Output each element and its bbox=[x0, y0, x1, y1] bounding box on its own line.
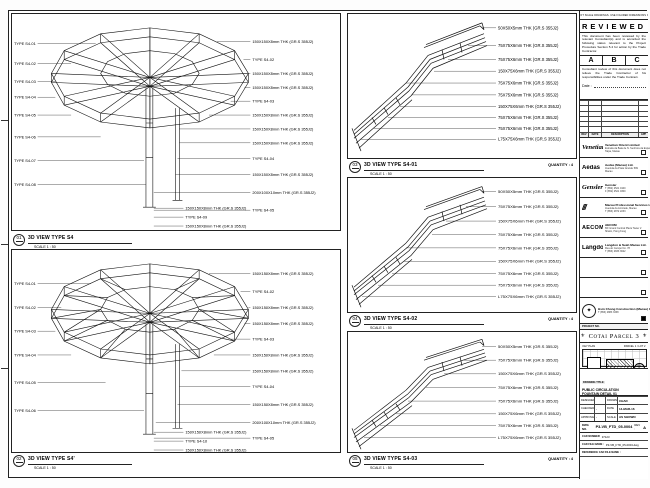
annotation-label: 150X75X6mm THK (GR.S 355J2) bbox=[498, 411, 561, 416]
view-scale: SCALE 1 : 50 bbox=[364, 326, 484, 330]
contractor-contact: T (853) 2883 3338 bbox=[598, 311, 646, 314]
annotation-label: TYPE S4-06 bbox=[14, 408, 37, 413]
annotation-label: 75X75X6mm THK (GR.S 355J2) bbox=[498, 43, 559, 48]
quantity-note: QUANTITY : 4 bbox=[548, 163, 573, 167]
view-title: 3D VIEW TYPE S4-02 bbox=[364, 315, 484, 325]
quantity-note: QUANTITY : 4 bbox=[548, 317, 573, 321]
date-line bbox=[594, 83, 646, 88]
annotation-label: TYPE S4-04 bbox=[252, 156, 275, 161]
contractor-row: ✦ Hsin Chong Construction (Macau) Co. Lt… bbox=[580, 298, 648, 324]
steel-members bbox=[352, 187, 487, 308]
annotation-label: 150X150X8mm THK (GR.S 355J2) bbox=[252, 368, 314, 373]
steel-members bbox=[352, 339, 487, 449]
detail-number: 04 bbox=[352, 317, 357, 322]
view-scale: SCALE 1 : 50 bbox=[364, 466, 484, 470]
annotation-label: 150X75X6mm THK (GR.S 355J2) bbox=[498, 104, 561, 109]
view-panel-04: 50X50X5mm THK (GR.S 355J2) 75X75X6mm THK… bbox=[347, 177, 577, 313]
consultant-row: Gensler Gensler T (852) 2521 0100 F (852… bbox=[580, 178, 648, 198]
annotation-label: TYPE S4-06 bbox=[14, 134, 37, 139]
annotation-label: 150X150X8mm THK (GR.S 355J2) bbox=[252, 172, 314, 177]
annotation-label: TYPE S4-03 bbox=[252, 337, 275, 342]
annotation-label: TYPE S4-05 bbox=[14, 113, 37, 118]
annotation-label: 75X75X6mm THK (GR.S 355J2) bbox=[498, 283, 559, 288]
detail-number: 01 bbox=[16, 236, 21, 241]
detail-number: 02 bbox=[16, 457, 21, 462]
status-checkbox bbox=[641, 170, 647, 176]
consultant-logo: AECOM bbox=[582, 225, 603, 231]
view-title-02: 02 3D VIEW TYPE S4'SCALE 1 : 50 bbox=[13, 455, 132, 470]
date-value: 14-MAR-16 bbox=[618, 404, 648, 412]
annotation-label: TYPE S4-08 bbox=[14, 182, 37, 187]
detail-ref-line bbox=[16, 462, 23, 465]
status-checkbox bbox=[641, 270, 647, 276]
date-label: Date : bbox=[582, 84, 592, 88]
view-scale: SCALE 1 : 50 bbox=[364, 172, 484, 176]
consultant-logo: Venetian bbox=[582, 144, 603, 151]
leader-lines bbox=[38, 42, 251, 226]
consultant-list: Venetian Venetian Orient Limited Estrada… bbox=[580, 138, 648, 298]
stamp-body: This document has been reviewed by the r… bbox=[580, 33, 648, 55]
right-annotations: 50X50X5mm THK (GR.S 355J2) 75X75X6mm THK… bbox=[498, 25, 561, 141]
cad-number-value: 37123 bbox=[602, 435, 610, 439]
fold-mark bbox=[1, 368, 8, 369]
annotation-label: 50X50X5mm THK (GR.S 355J2) bbox=[498, 189, 559, 194]
consultant-row: Venetian Venetian Orient Limited Estrada… bbox=[580, 138, 648, 158]
annotation-label: 150X150X8mm THK (GR.S 355J2) bbox=[252, 126, 314, 131]
annotation-label: 75X75X6mm THK (GR.S 355J2) bbox=[498, 115, 559, 120]
consultant-name: Macau Professional Services Ltd. bbox=[605, 203, 646, 207]
quantity-note: QUANTITY : 4 bbox=[548, 457, 573, 461]
view-title-01: 01 3D VIEW TYPE S4SCALE 1 : 50 bbox=[13, 234, 132, 249]
annotation-label: TYPE S4-04 bbox=[252, 384, 275, 389]
dwg-number-row: DWG NO. P3-VB_FTD_05-0004 REV : A bbox=[580, 422, 648, 433]
annotation-label: 75X75X6mm THK (GR.S 355J2) bbox=[498, 204, 559, 209]
fold-mark bbox=[1, 244, 8, 245]
annotation-label: 200X100X10mm THK (GR.S 355J2) bbox=[252, 420, 316, 425]
steel-members bbox=[352, 23, 487, 151]
ref-file-label: REFERENCE CAD FILE NAME : bbox=[582, 451, 621, 454]
annotation-label: TYPE S4-05 bbox=[14, 380, 37, 385]
annotation-label: TYPE S4-02 bbox=[252, 289, 274, 294]
annotation-label: 75X75X6mm THK (GR.S 355J2) bbox=[498, 271, 559, 276]
annotation-label: 150X150X8mm THK (GR.S 355J2) bbox=[252, 352, 314, 357]
date-label: DATE bbox=[606, 404, 618, 412]
annotation-label: 150X150X8mm THK (GR.S 355J2) bbox=[185, 447, 247, 452]
annotation-label: 75X75X6mm THK (GR.S 355J2) bbox=[498, 245, 559, 250]
status-checkbox bbox=[641, 150, 647, 156]
status-checkbox bbox=[641, 210, 647, 216]
annotation-label: 75X75X6mm THK (GR.S 355J2) bbox=[498, 232, 559, 237]
annotation-label: 150X75X6mm THK (GR.S 355J2) bbox=[498, 219, 562, 224]
left-annotations: TYPE S4-01 TYPE S4-02 TYPE S4-03 TYPE S4… bbox=[14, 281, 37, 413]
key-plan-map: ✛ bbox=[582, 349, 647, 367]
annotation-label: 150X150X8mm THK (GR.S 355J2) bbox=[252, 85, 314, 90]
view-title: 3D VIEW TYPE S4-03 bbox=[364, 455, 484, 465]
canopy-structure-drawing: TYPE S4-01 TYPE S4-02 TYPE S4-03 TYPE S4… bbox=[12, 250, 340, 452]
annotation-label: 150X150X8mm THK (GR.S 355J2) bbox=[252, 140, 314, 145]
annotation-label: TYPE S4-10 bbox=[185, 439, 208, 444]
annotation-label: TYPE S4-05 bbox=[252, 208, 275, 213]
detail-bubble: 02 bbox=[13, 455, 25, 467]
annotation-label: TYPE S4-03 bbox=[14, 79, 37, 84]
annotation-label: L75X75X6mm THK (GR.S 355J2) bbox=[498, 435, 561, 440]
steel-wireframe bbox=[51, 264, 248, 434]
detail-number: 03 bbox=[352, 163, 357, 168]
detail-ref-line bbox=[352, 168, 359, 171]
rev-label: REV : bbox=[634, 423, 641, 431]
annotation-label: 50X50X5mm THK (GR.S 355J2) bbox=[498, 25, 559, 30]
cad-file-label: CAD FILE NAME : bbox=[582, 443, 604, 446]
detail-ref-line bbox=[16, 241, 23, 244]
steel-wireframe bbox=[51, 28, 248, 207]
project-no-label: PROJECT NO. bbox=[582, 325, 600, 328]
fold-mark bbox=[1, 120, 8, 121]
title-block: DO NOT SCALE DRAWINGS. USE FIGURED DIMEN… bbox=[579, 11, 648, 479]
view-panel-03: 50X50X5mm THK (GR.S 355J2) 75X75X6mm THK… bbox=[347, 13, 577, 159]
view-title: 3D VIEW TYPE S4' bbox=[28, 455, 132, 465]
view-panel-05: 50X50X5mm THK (GR.S 355J2) 75X75X6mm THK… bbox=[347, 331, 577, 453]
rev-col-header: REV bbox=[580, 133, 589, 137]
approved-label: APPROVED bbox=[580, 413, 595, 421]
consultant-logo: LangdonSeah bbox=[582, 245, 603, 251]
cad-number-label: CAD NUMBER bbox=[582, 435, 600, 438]
drawing-sheet: TYPE S4-01 TYPE S4-02 TYPE S4-03 TYPE S4… bbox=[8, 10, 647, 478]
annotation-label: TYPE S4-03 bbox=[252, 99, 275, 104]
consultant-row: LangdonSeah Langdon & Seah Macau Ltd. Ru… bbox=[580, 238, 648, 258]
status-checkbox bbox=[641, 250, 647, 256]
project-name: Cotai Parcel 3 bbox=[589, 333, 640, 340]
annotation-label: 150X150X8mm THK (GR.S 355J2) bbox=[252, 305, 314, 310]
annotation-label: 75X75X6mm THK (GR.S 355J2) bbox=[498, 92, 559, 97]
revision-table: REV DATE DESCRIPTION APP bbox=[580, 100, 648, 138]
rib-assembly-drawing: 50X50X5mm THK (GR.S 355J2) 75X75X6mm THK… bbox=[348, 178, 576, 312]
annotation-label: 150X150X8mm THK (GR.S 355J2) bbox=[252, 39, 314, 44]
leader-lines bbox=[362, 191, 496, 296]
cad-file-value: P3-VB_FTD_05-0004.dwg bbox=[606, 443, 639, 447]
annotation-label: 150X75X6mm THK (GR.S 355J2) bbox=[498, 259, 562, 264]
right-annotations: 50X50X5mm THK (GR.S 355J2) 75X75X6mm THK… bbox=[498, 189, 562, 299]
annotation-label: TYPE S4-04 bbox=[14, 95, 37, 100]
annotation-label: 75X75X6mm THK (GR.S 355J2) bbox=[498, 385, 559, 390]
rev-value: A bbox=[643, 425, 646, 430]
consultant-row: /// Macau Professional Services Ltd. Ave… bbox=[580, 198, 648, 218]
annotation-label: 150X150X8mm THK (GR.S 355J2) bbox=[252, 321, 314, 326]
annotation-label: 75X75X6mm THK (GR.S 355J2) bbox=[498, 57, 559, 62]
detail-number: 05 bbox=[352, 457, 357, 462]
cad-file-row: CAD FILE NAME : P3-VB_FTD_05-0004.dwg bbox=[580, 441, 648, 449]
key-plan: KEY PLAN PARCEL 1 / LOT 2 ✛ bbox=[580, 343, 648, 369]
consultant-logo: Aedas bbox=[582, 165, 603, 171]
highlighted-area bbox=[606, 359, 634, 370]
detail-ref-line bbox=[352, 462, 359, 465]
leader-lines bbox=[38, 274, 251, 450]
annotation-label: 150X75X6mm THK (GR.S 355J2) bbox=[498, 371, 561, 376]
key-plan-ref: PARCEL 1 / LOT 2 bbox=[624, 345, 646, 348]
drawn-label: DRAWN bbox=[606, 396, 618, 404]
consultant-row: AECOM AECOM 8/F Grand Central Plaza Towe… bbox=[580, 218, 648, 238]
view-title-04: 04 3D VIEW TYPE S4-02SCALE 1 : 50 QUANTI… bbox=[349, 315, 575, 330]
designed-label: DESIGNED bbox=[580, 396, 595, 404]
annotation-label: TYPE S4-02 bbox=[14, 61, 36, 66]
detail-bubble: 01 bbox=[13, 234, 25, 246]
checked-value: - bbox=[595, 404, 606, 412]
annotation-label: 150X150X8mm THK (GR.S 355J2) bbox=[185, 224, 247, 229]
stamp-body2: Consultant review of this document does … bbox=[580, 66, 648, 81]
leader-lines bbox=[364, 347, 496, 438]
right-annotations: 150X150X8mm THK (GR.S 355J2) TYPE S4-02 … bbox=[252, 39, 316, 212]
rib-assembly-drawing: 50X50X5mm THK (GR.S 355J2) 75X75X6mm THK… bbox=[348, 332, 576, 452]
annotation-label: L75X75X6mm THK (GR.S 355J2) bbox=[498, 137, 561, 142]
checked-label: CHECKED bbox=[580, 404, 595, 412]
annotation-label: TYPE S4-02 bbox=[14, 305, 36, 310]
drawing-title-section: DRAWING TITLE: PUBLIC CIRCULATION FOUNTA… bbox=[580, 369, 648, 396]
building-footprint bbox=[587, 357, 601, 370]
annotation-label: 150X150X8mm THK (GR.S 355J2) bbox=[252, 71, 314, 76]
consultant-logo: Gensler bbox=[582, 184, 603, 191]
grade-a: A bbox=[580, 56, 603, 65]
designed-value bbox=[595, 396, 606, 404]
detail-ref-line bbox=[352, 322, 359, 325]
annotation-label: 150X150X8mm THK (GR.S 355J2) bbox=[185, 430, 247, 435]
annotation-label: 50X50X5mm THK (GR.S 355J2) bbox=[498, 344, 559, 349]
detail-bubble: 04 bbox=[349, 315, 361, 327]
view-panel-02: TYPE S4-01 TYPE S4-02 TYPE S4-03 TYPE S4… bbox=[11, 249, 341, 453]
view-scale: SCALE 1 : 50 bbox=[28, 466, 132, 470]
app-col-header: APP bbox=[639, 133, 648, 137]
annotation-label: TYPE S4-09 bbox=[185, 215, 207, 220]
stamp-grade-row: A B C bbox=[580, 55, 648, 66]
annotation-label: TYPE S4-07 bbox=[14, 158, 36, 163]
date-col-header: DATE bbox=[589, 133, 602, 137]
ornament-icon: ⚜ bbox=[581, 333, 586, 339]
annotation-label: 75X75X6mm THK (GR.S 355J2) bbox=[498, 423, 559, 428]
consultant-row: Aedas Aedas (Macau) Ltd. Avenida da Prai… bbox=[580, 158, 648, 178]
dwg-no-label: DWG NO. bbox=[582, 423, 594, 431]
rib-assembly-drawing: 50X50X5mm THK (GR.S 355J2) 75X75X6mm THK… bbox=[348, 14, 576, 158]
bottom-annotations: 150X150X8mm THK (GR.S 355J2) TYPE S4-10 … bbox=[185, 430, 247, 452]
detail-bubble: 03 bbox=[349, 161, 361, 173]
view-title: 3D VIEW TYPE S4 bbox=[28, 234, 132, 244]
bottom-spacer bbox=[580, 457, 648, 479]
stamp-date-row: Date : bbox=[580, 81, 648, 88]
description-col-header: DESCRIPTION bbox=[602, 133, 639, 137]
ref-file-row: REFERENCE CAD FILE NAME : bbox=[580, 449, 648, 457]
annotation-label: 150X75X6mm THK (GR.S 355J2) bbox=[498, 69, 561, 74]
scale-label: SCALE bbox=[606, 413, 618, 421]
cad-number-row: CAD NUMBER 37123 bbox=[580, 433, 648, 441]
disclaimer-note: DO NOT SCALE DRAWINGS. USE FIGURED DIMEN… bbox=[580, 11, 648, 20]
annotation-label: TYPE S4-01 bbox=[14, 41, 36, 46]
view-title: 3D VIEW TYPE S4-01 bbox=[364, 161, 484, 171]
annotation-label: L75X75X6mm THK (GR.S 355J2) bbox=[498, 294, 562, 299]
status-checkbox-filled bbox=[641, 316, 647, 322]
annotation-label: 75X75X6mm THK (GR.S 355J2) bbox=[498, 81, 559, 86]
key-plan-label: KEY PLAN bbox=[583, 345, 596, 348]
consultant-name: Venetian Orient Limited bbox=[605, 143, 646, 147]
annotation-label: TYPE S4-03 bbox=[14, 329, 37, 334]
right-annotations: 50X50X5mm THK (GR.S 355J2) 75X75X6mm THK… bbox=[498, 344, 561, 440]
contractor-emblem-icon: ✦ bbox=[582, 304, 596, 318]
stamp-title: REVIEWED bbox=[580, 20, 648, 33]
annotation-label: 75X75X6mm THK (GR.S 355J2) bbox=[498, 358, 559, 363]
annotation-label: 75X75X6mm THK (GR.S 355J2) bbox=[498, 126, 559, 131]
annotation-label: TYPE S4-02 bbox=[252, 57, 274, 62]
approved-value: - bbox=[595, 413, 606, 421]
consultant-row bbox=[580, 278, 648, 298]
consultant-row bbox=[580, 258, 648, 278]
annotation-label: 150X150X8mm THK (GR.S 355J2) bbox=[252, 113, 314, 118]
grade-c: C bbox=[626, 56, 648, 65]
revision-header-row: REV DATE DESCRIPTION APP bbox=[580, 132, 648, 137]
annotation-label: 150X150X8mm THK (GR.S 355J2) bbox=[185, 206, 247, 211]
consultant-logo: /// bbox=[582, 203, 603, 212]
annotation-label: TYPE S4-01 bbox=[14, 281, 36, 286]
consultant-name: Langdon & Seah Macau Ltd. bbox=[605, 243, 646, 247]
annotation-label: TYPE S4-04 bbox=[14, 352, 37, 357]
status-checkbox bbox=[641, 230, 647, 236]
annotation-label: 200X100X10mm THK (GR.S 355J2) bbox=[252, 190, 316, 195]
drawn-value: CHAD bbox=[618, 396, 648, 404]
bottom-annotations: 150X150X8mm THK (GR.S 355J2) TYPE S4-09 … bbox=[185, 206, 247, 229]
project-banner: ⚜ Cotai Parcel 3 ⚜ bbox=[580, 330, 648, 343]
view-panel-01: TYPE S4-01 TYPE S4-02 TYPE S4-03 TYPE S4… bbox=[11, 13, 341, 231]
right-annotations: 150X150X8mm THK (GR.S 355J2) TYPE S4-02 … bbox=[252, 271, 316, 440]
status-checkbox bbox=[641, 290, 647, 296]
view-title-03: 03 3D VIEW TYPE S4-01SCALE 1 : 50 QUANTI… bbox=[349, 161, 575, 176]
detail-bubble: 05 bbox=[349, 455, 361, 467]
ornament-icon: ⚜ bbox=[642, 333, 647, 339]
status-checkbox bbox=[641, 190, 647, 196]
annotation-label: 75X75X6mm THK (GR.S 355J2) bbox=[498, 399, 559, 404]
grade-b: B bbox=[603, 56, 626, 65]
review-stamp: REVIEWED This document has been reviewed… bbox=[580, 20, 648, 100]
canopy-structure-drawing: TYPE S4-01 TYPE S4-02 TYPE S4-03 TYPE S4… bbox=[12, 14, 340, 230]
annotation-label: 150X150X8mm THK (GR.S 355J2) bbox=[252, 271, 314, 276]
drawing-title-label: DRAWING TITLE: bbox=[582, 381, 605, 384]
annotation-label: 150X150X8mm THK (GR.S 355J2) bbox=[252, 402, 314, 407]
annotation-label: TYPE S4-05 bbox=[252, 436, 275, 441]
left-annotations: TYPE S4-01 TYPE S4-02 TYPE S4-03 TYPE S4… bbox=[14, 41, 37, 187]
scale-value: AS SHOWN bbox=[618, 413, 648, 421]
view-title-05: 05 3D VIEW TYPE S4-03SCALE 1 : 50 QUANTI… bbox=[349, 455, 575, 470]
dwg-no-value: P3-VB_FTD_05-0004 bbox=[596, 425, 633, 429]
signoff-fields: DESIGNED DRAWN CHAD CHECKED - DATE 14-MA… bbox=[580, 396, 648, 422]
